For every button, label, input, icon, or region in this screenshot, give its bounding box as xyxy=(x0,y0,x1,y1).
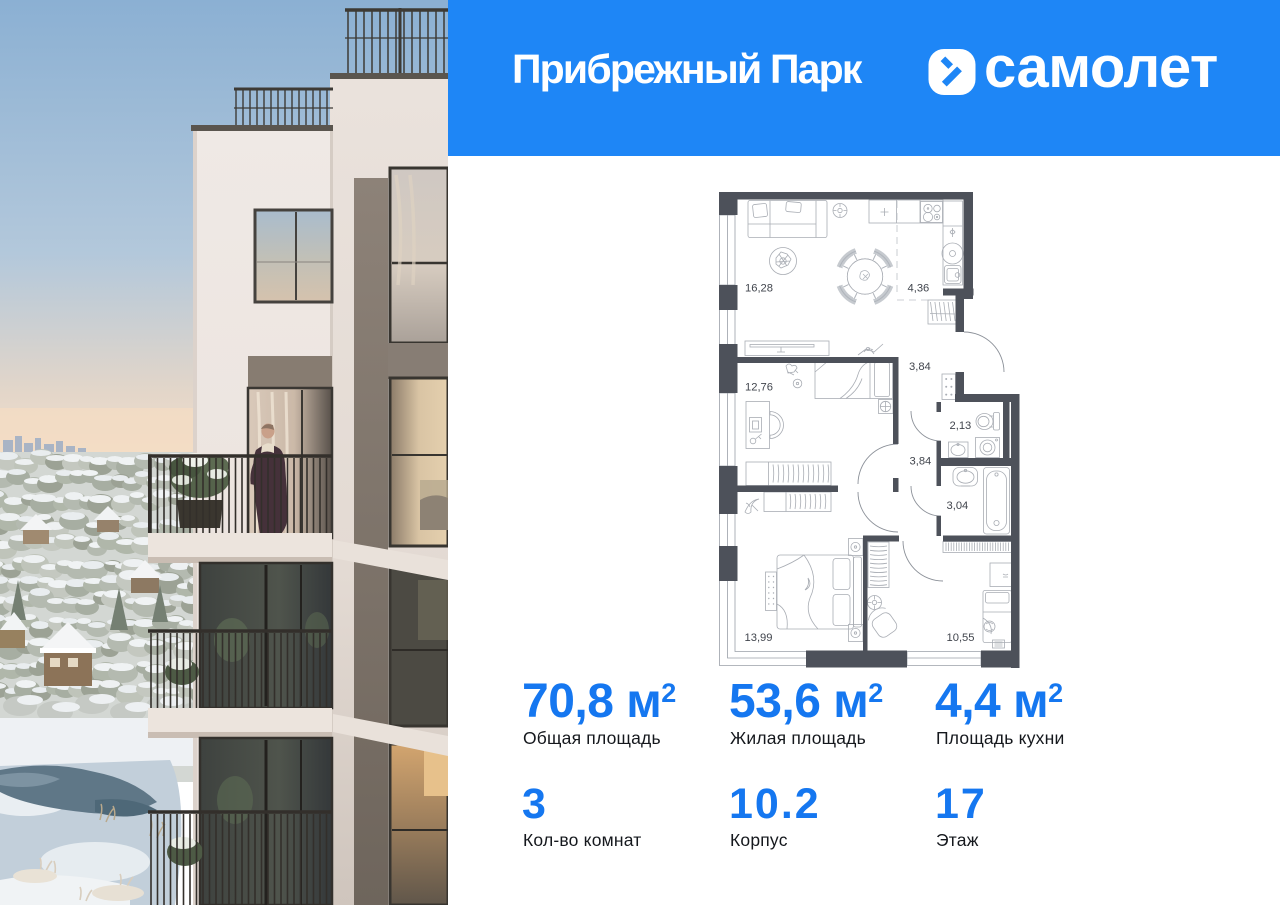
svg-text:10,55: 10,55 xyxy=(947,632,975,644)
svg-text:3,84: 3,84 xyxy=(910,456,932,468)
svg-text:12,76: 12,76 xyxy=(745,382,773,394)
svg-text:3,04: 3,04 xyxy=(947,500,969,512)
svg-text:3,84: 3,84 xyxy=(909,361,931,373)
svg-text:2,13: 2,13 xyxy=(950,420,972,432)
svg-text:4,36: 4,36 xyxy=(908,283,930,295)
svg-text:13,99: 13,99 xyxy=(745,632,773,644)
svg-text:16,28: 16,28 xyxy=(745,283,773,295)
